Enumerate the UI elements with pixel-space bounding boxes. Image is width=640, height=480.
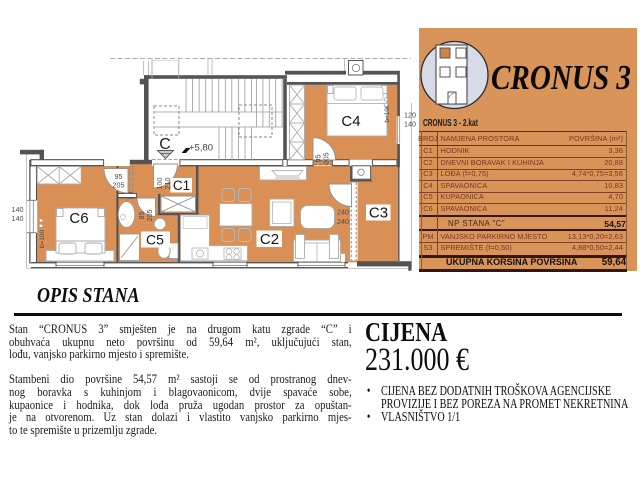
- svg-text:+5,80: +5,80: [189, 143, 213, 154]
- svg-text:140: 140: [12, 214, 24, 223]
- svg-text:140: 140: [404, 120, 416, 129]
- svg-text:b=100: b=100: [39, 229, 46, 248]
- svg-text:240: 240: [337, 217, 349, 226]
- svg-text:C1: C1: [173, 178, 190, 193]
- svg-text:b=100: b=100: [384, 104, 391, 123]
- svg-text:C2: C2: [260, 231, 279, 248]
- svg-text:240: 240: [337, 208, 349, 217]
- svg-text:C5: C5: [146, 232, 164, 248]
- svg-text:C4: C4: [341, 113, 360, 130]
- svg-text:210: 210: [163, 178, 172, 190]
- svg-text:C6: C6: [69, 210, 88, 227]
- svg-text:205: 205: [145, 210, 154, 222]
- svg-text:140: 140: [12, 205, 24, 214]
- svg-text:205: 205: [113, 181, 125, 190]
- svg-text:CRONUS 3: CRONUS 3: [491, 58, 631, 97]
- svg-text:120: 120: [404, 111, 416, 120]
- svg-text:205: 205: [322, 153, 331, 165]
- svg-text:C3: C3: [369, 205, 388, 222]
